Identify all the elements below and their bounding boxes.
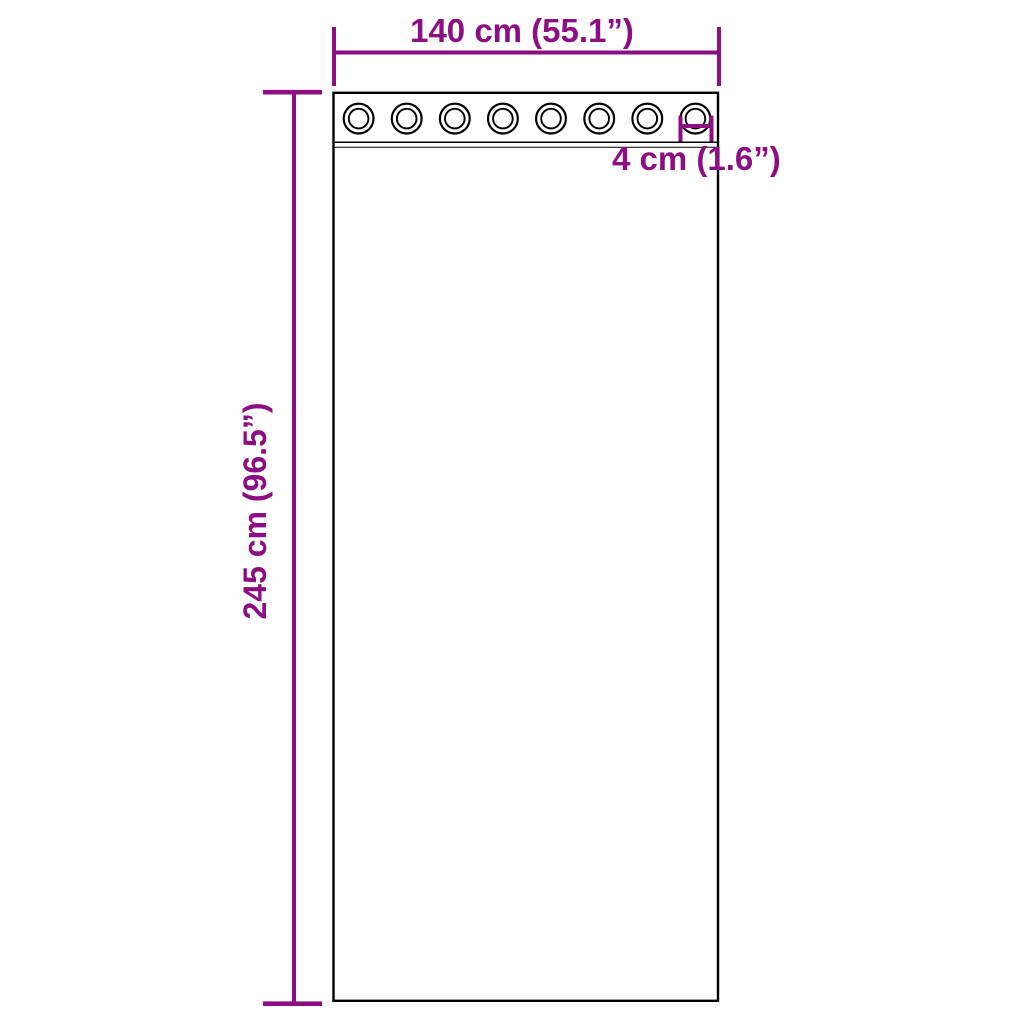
svg-text:140 cm (55.1”): 140 cm (55.1”) (410, 12, 634, 49)
svg-text:245 cm (96.5”): 245 cm (96.5”) (237, 402, 273, 619)
svg-text:4 cm (1.6”): 4 cm (1.6”) (612, 140, 781, 177)
